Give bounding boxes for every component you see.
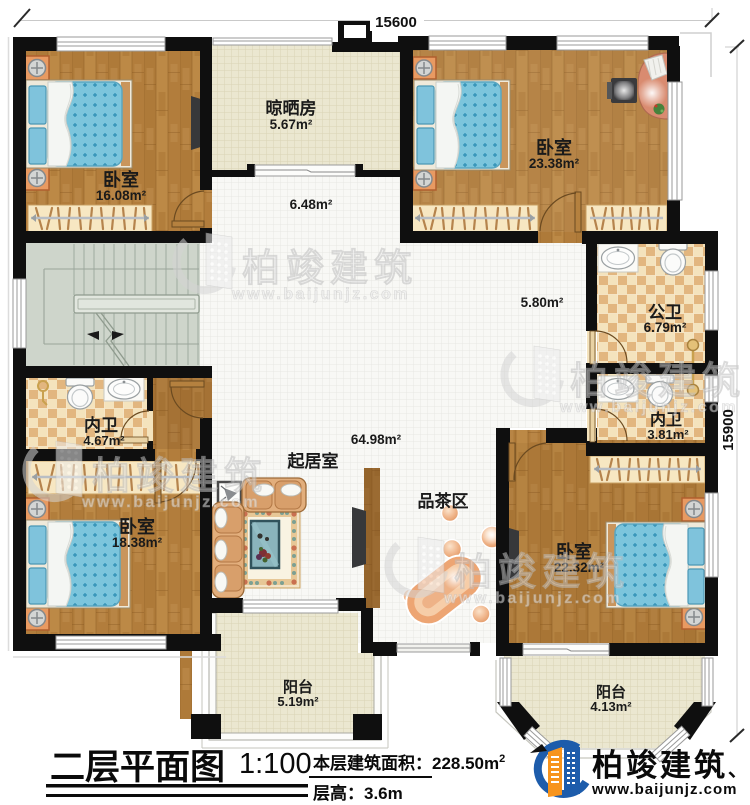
svg-text:卧室: 卧室 <box>536 137 572 158</box>
svg-text:5.67m²: 5.67m² <box>270 117 313 132</box>
svg-text:起居室: 起居室 <box>287 451 339 471</box>
svg-text:3.81m²: 3.81m² <box>647 427 689 442</box>
svg-text:64.98m²: 64.98m² <box>351 432 402 447</box>
svg-text:卧室: 卧室 <box>103 169 139 190</box>
svg-text:柏竣建筑、: 柏竣建筑、 <box>592 748 750 783</box>
svg-text:16.08m²: 16.08m² <box>96 188 147 203</box>
svg-text:5.19m²: 5.19m² <box>277 694 319 709</box>
svg-text:二层平面图: 二层平面图 <box>50 748 225 787</box>
svg-text:层高：3.6m: 层高：3.6m <box>313 783 403 803</box>
svg-text:4.67m²: 4.67m² <box>83 433 125 448</box>
svg-text:www.baijunjz.com: www.baijunjz.com <box>591 781 737 798</box>
svg-text:5.80m²: 5.80m² <box>521 295 564 310</box>
svg-text:23.38m²: 23.38m² <box>529 156 580 171</box>
svg-text:6.79m²: 6.79m² <box>644 320 687 335</box>
svg-text:内卫: 内卫 <box>84 415 118 435</box>
svg-text:品茶区: 品茶区 <box>418 491 469 511</box>
svg-text:卧室: 卧室 <box>119 516 155 537</box>
svg-text:18.38m²: 18.38m² <box>112 535 163 550</box>
svg-text:4.13m²: 4.13m² <box>590 699 632 714</box>
svg-text:1:100: 1:100 <box>239 748 312 780</box>
svg-text:15600: 15600 <box>375 14 417 31</box>
svg-text:15900: 15900 <box>720 409 737 451</box>
svg-text:本层建筑面积：228.50m2: 本层建筑面积：228.50m2 <box>313 753 505 773</box>
svg-text:晾晒房: 晾晒房 <box>266 98 317 118</box>
svg-text:6.48m²: 6.48m² <box>290 197 333 212</box>
